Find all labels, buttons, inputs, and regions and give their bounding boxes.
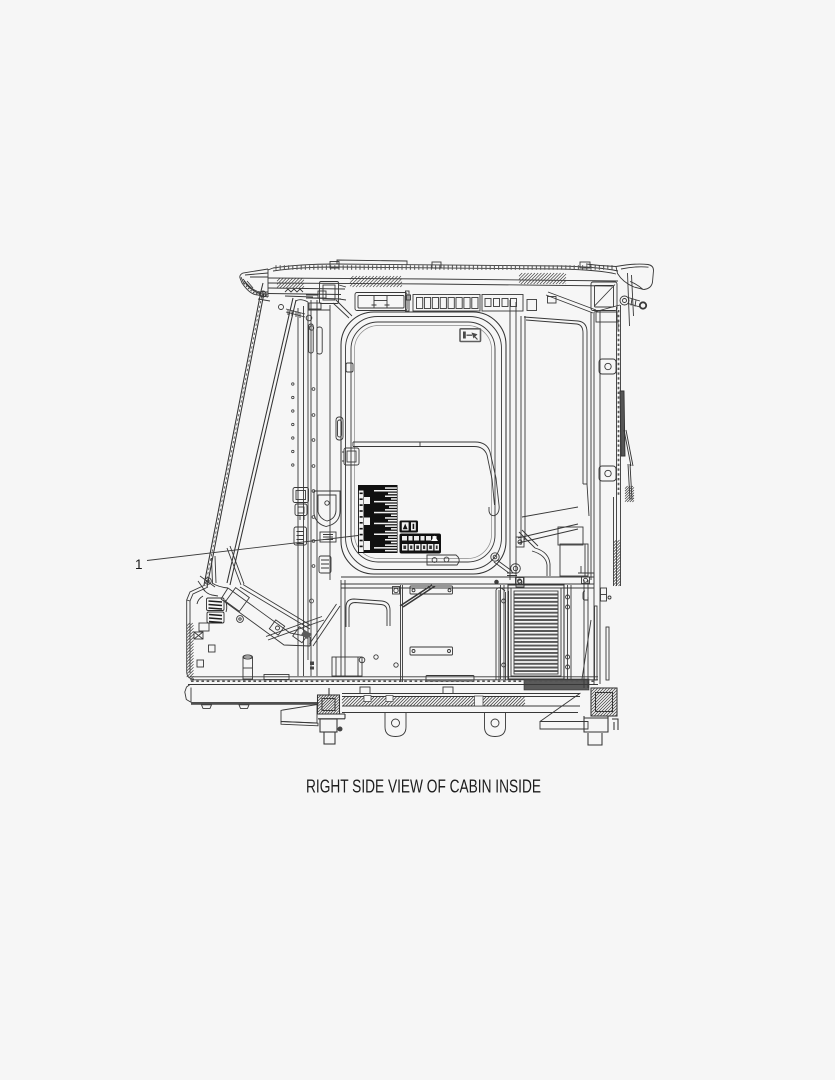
svg-text:RIGHT SIDE VIEW OF CABIN INSID: RIGHT SIDE VIEW OF CABIN INSIDE [306, 777, 541, 797]
svg-text:1: 1 [135, 557, 143, 572]
